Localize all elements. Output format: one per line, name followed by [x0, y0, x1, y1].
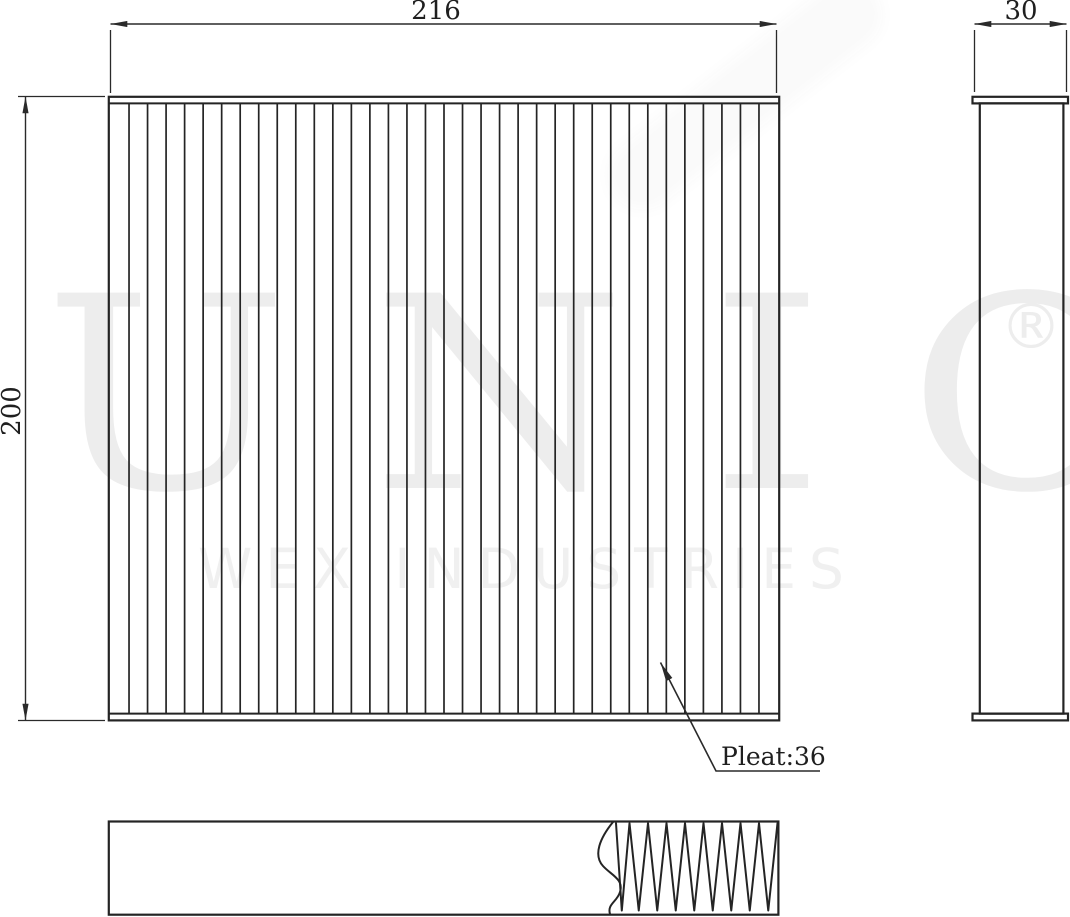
dimension-width: 216	[111, 0, 777, 93]
pleat-lines	[129, 103, 759, 713]
section-view	[109, 822, 779, 915]
pleat-zigzag	[616, 823, 778, 910]
side-view-bottom-cap	[973, 714, 1069, 721]
side-view-body	[980, 103, 1064, 713]
dimension-width-value: 216	[411, 0, 461, 26]
filter-technical-drawing: 216 200 30 Pleat:36	[0, 0, 1070, 917]
dimension-height-value: 200	[0, 386, 27, 436]
dimension-depth: 30	[975, 0, 1067, 92]
dimension-height: 200	[0, 97, 105, 721]
section-view-frame	[109, 822, 779, 915]
pleat-callout-label: Pleat:36	[721, 742, 826, 771]
technical-drawing-page: UNIO ® WEX INDUSTRIES	[0, 0, 1070, 917]
dimension-depth-value: 30	[1004, 0, 1037, 26]
side-view	[973, 97, 1069, 721]
front-view	[109, 97, 779, 721]
